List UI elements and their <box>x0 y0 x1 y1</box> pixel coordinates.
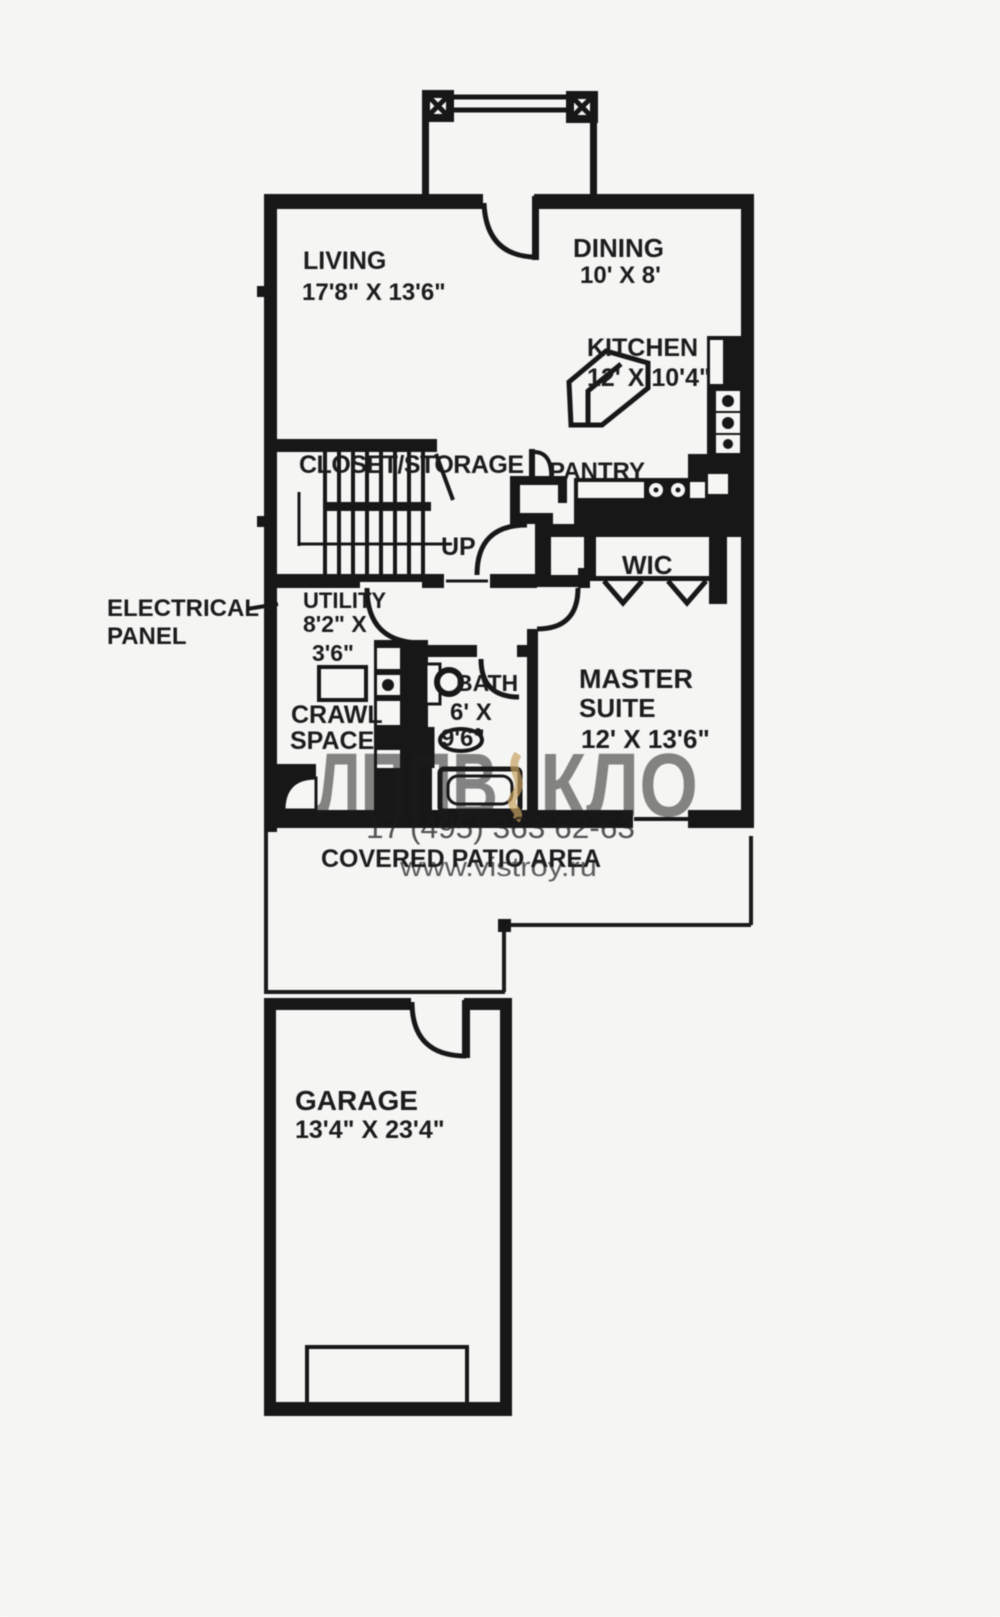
svg-text:PANEL: PANEL <box>107 623 187 650</box>
svg-text:BATH: BATH <box>456 670 518 696</box>
svg-text:6' X: 6' X <box>450 699 492 726</box>
svg-text:8'2" X: 8'2" X <box>303 611 367 637</box>
svg-text:GARAGE: GARAGE <box>295 1085 418 1116</box>
svg-text:3'6": 3'6" <box>312 640 354 666</box>
svg-text:10' X 8': 10' X 8' <box>580 262 661 289</box>
svg-text:UTILITY: UTILITY <box>303 588 386 613</box>
svg-text:PANTRY: PANTRY <box>549 458 645 485</box>
svg-text:www.vistroy.ru: www.vistroy.ru <box>399 852 597 882</box>
svg-text:DINING: DINING <box>573 233 664 263</box>
svg-text:17'8" X 13'6": 17'8" X 13'6" <box>302 279 446 306</box>
svg-text:UP: UP <box>441 533 476 561</box>
svg-text:17 (495) 363 62-63: 17 (495) 363 62-63 <box>366 810 635 845</box>
svg-text:CRAWL: CRAWL <box>291 701 383 729</box>
svg-text:KITCHEN: KITCHEN <box>587 334 698 362</box>
svg-text:ELECTRICAL: ELECTRICAL <box>107 595 259 622</box>
svg-text:CLOSET/STORAGE: CLOSET/STORAGE <box>299 451 524 479</box>
svg-text:LIVING: LIVING <box>303 247 386 275</box>
svg-text:WIC: WIC <box>622 550 673 580</box>
svg-text:13'4" X 23'4": 13'4" X 23'4" <box>295 1116 445 1144</box>
svg-text:MASTER: MASTER <box>579 664 693 694</box>
svg-text:12' X 10'4": 12' X 10'4" <box>587 364 711 392</box>
svg-text:SUITE: SUITE <box>579 693 656 723</box>
